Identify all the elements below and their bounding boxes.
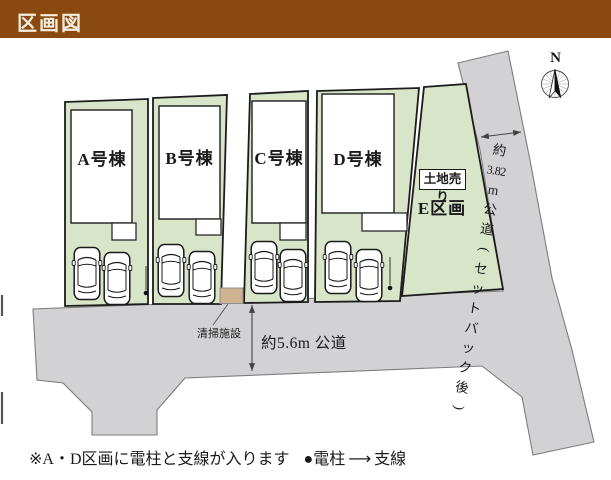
plot-map-drawing — [0, 0, 611, 480]
lot-b-label: B号棟 — [159, 144, 220, 169]
building-c-porch — [280, 223, 306, 240]
lot-a-label: A号棟 — [71, 145, 133, 170]
building-d-porch — [362, 213, 407, 231]
parked-car — [187, 252, 217, 304]
lot-c-label: C号棟 — [250, 144, 308, 169]
east-road-label-char: 約 — [491, 140, 507, 162]
building-a-porch — [112, 223, 136, 240]
parked-car — [249, 242, 279, 294]
title-bar: 区画図 — [0, 0, 611, 38]
lot-d-label: D号棟 — [322, 145, 394, 170]
parked-car — [102, 253, 132, 305]
building-b-porch — [196, 219, 221, 235]
east-road-label-char: ッ — [469, 278, 485, 300]
parked-car — [354, 250, 384, 302]
legend-pole-dot-icon: ● — [304, 451, 314, 468]
parked-car — [323, 242, 353, 294]
legend-wire-label: 支線 — [374, 451, 406, 468]
legend-pole-label: 電柱 — [313, 451, 345, 468]
legend-wire-arrow-icon: ⟶ — [345, 449, 374, 468]
compass-rose — [542, 69, 569, 98]
footnote-text: ※A・D区画に電柱と支線が入ります — [29, 451, 290, 468]
compass-north-label: N — [547, 50, 564, 67]
east-road-label-char: 道 — [479, 219, 495, 241]
east-road-label-char: m — [486, 180, 500, 201]
cleaning-facility-label: 清掃施設 — [195, 325, 243, 341]
parked-car — [278, 250, 308, 302]
footnote: ※A・D区画に電柱と支線が入ります●電柱⟶支線 — [29, 445, 406, 469]
east-road-label-char: 公 — [482, 199, 498, 221]
east-road-label-char: 後 — [454, 377, 470, 399]
cleaning-facility-box — [220, 288, 243, 304]
east-road-label-char: ( — [474, 246, 494, 254]
parked-car — [72, 248, 102, 300]
east-road-label-char: ト — [466, 298, 482, 320]
east-road-label-char: ) — [449, 404, 469, 412]
east-road-label-char: ク — [457, 357, 473, 379]
parked-car — [156, 245, 186, 297]
east-road-label-char: セ — [472, 258, 488, 280]
land-sale-badge: 土地売り — [419, 169, 466, 190]
page-title: 区画図 — [17, 7, 83, 36]
east-road-label-char: ッ — [460, 337, 476, 359]
south-road-label: 約5.6m 公道 — [261, 331, 347, 353]
plot-map-page: 区画図 A号棟 B号棟 C号棟 D号棟 土地売り E区画 約5.6m 公道 約3… — [0, 0, 611, 480]
lot-e-label: E区画 — [413, 194, 471, 219]
east-road-label-char: バ — [463, 318, 479, 340]
